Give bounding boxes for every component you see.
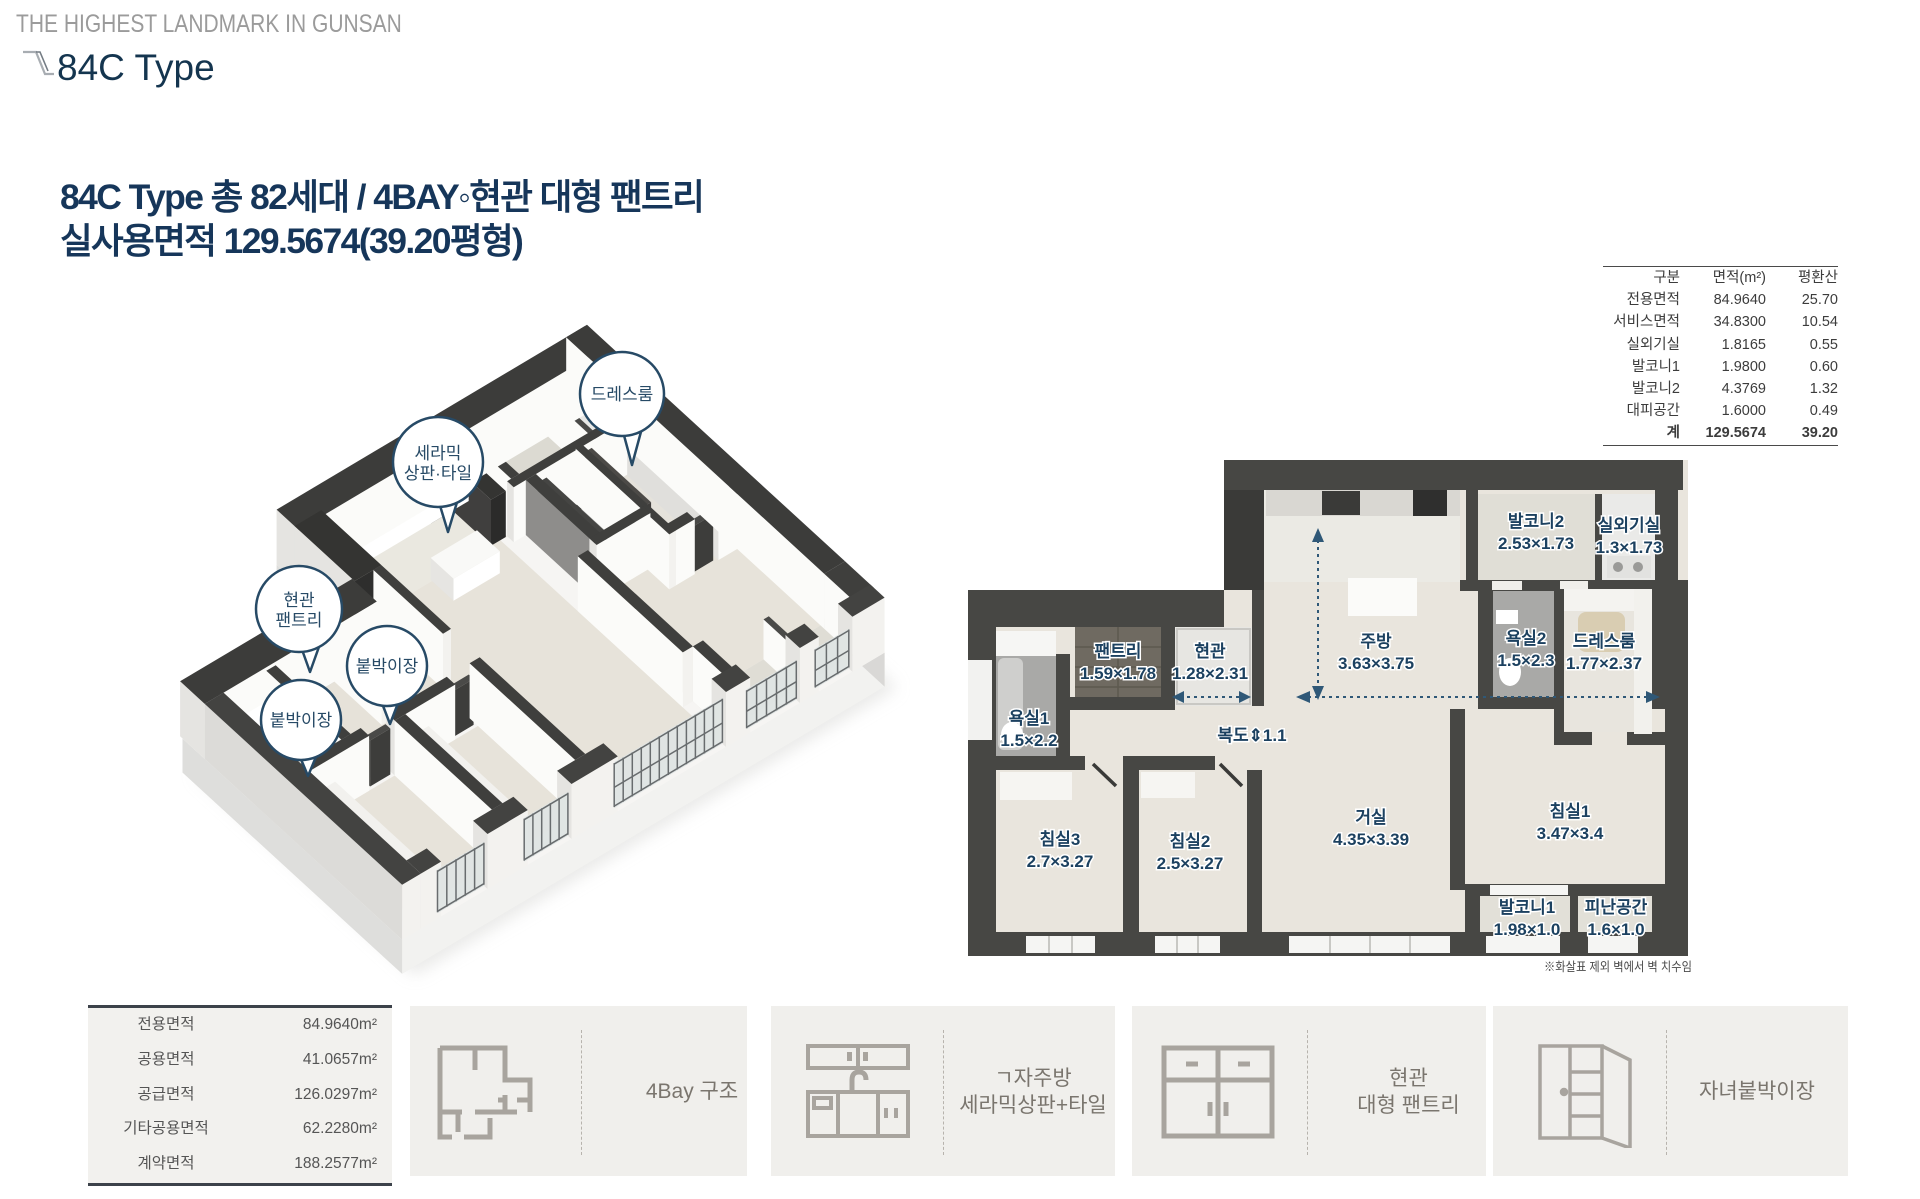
svg-text:1.5×2.2: 1.5×2.2 xyxy=(1000,731,1057,750)
svg-text:침실3: 침실3 xyxy=(1040,829,1081,849)
svg-text:발코니2: 발코니2 xyxy=(1508,512,1564,531)
svg-text:4.35×3.39: 4.35×3.39 xyxy=(1333,830,1409,849)
svg-text:1.3×1.73: 1.3×1.73 xyxy=(1596,538,1663,557)
svg-text:실외기실: 실외기실 xyxy=(1598,516,1661,535)
svg-text:욕실2: 욕실2 xyxy=(1506,629,1547,648)
svg-text:팬트리: 팬트리 xyxy=(1095,642,1142,661)
svg-text:1.28×2.31: 1.28×2.31 xyxy=(1172,664,1248,683)
svg-text:복도⇕1.1: 복도⇕1.1 xyxy=(1217,726,1286,745)
svg-text:침실2: 침실2 xyxy=(1170,831,1211,851)
svg-text:3.47×3.4: 3.47×3.4 xyxy=(1537,824,1604,843)
svg-text:상판·타일: 상판·타일 xyxy=(404,464,472,483)
svg-text:2.5×3.27: 2.5×3.27 xyxy=(1157,854,1224,873)
svg-text:1.5×2.3: 1.5×2.3 xyxy=(1497,651,1554,670)
svg-text:붙박이장: 붙박이장 xyxy=(270,711,333,730)
svg-text:드레스룸: 드레스룸 xyxy=(591,385,654,404)
svg-text:현관: 현관 xyxy=(283,591,314,610)
svg-text:세라믹: 세라믹 xyxy=(415,444,462,463)
svg-text:2.7×3.27: 2.7×3.27 xyxy=(1027,852,1094,871)
svg-text:팬트리: 팬트리 xyxy=(276,611,323,630)
svg-text:침실1: 침실1 xyxy=(1550,801,1591,821)
svg-text:주방: 주방 xyxy=(1360,632,1392,651)
svg-text:1.77×2.37: 1.77×2.37 xyxy=(1566,654,1642,673)
svg-text:드레스룸: 드레스룸 xyxy=(1573,632,1636,651)
svg-text:3.63×3.75: 3.63×3.75 xyxy=(1338,654,1414,673)
svg-text:2.53×1.73: 2.53×1.73 xyxy=(1498,534,1574,553)
svg-text:붙박이장: 붙박이장 xyxy=(356,657,419,676)
svg-text:1.6×1.0: 1.6×1.0 xyxy=(1587,920,1644,939)
svg-text:거실: 거실 xyxy=(1355,808,1386,827)
svg-text:현관: 현관 xyxy=(1194,642,1226,661)
svg-text:발코니1: 발코니1 xyxy=(1499,898,1555,917)
svg-text:1.98×1.0: 1.98×1.0 xyxy=(1494,920,1561,939)
svg-text:1.59×1.78: 1.59×1.78 xyxy=(1080,664,1156,683)
svg-text:욕실1: 욕실1 xyxy=(1009,709,1050,728)
svg-text:피난공간: 피난공간 xyxy=(1585,898,1648,917)
